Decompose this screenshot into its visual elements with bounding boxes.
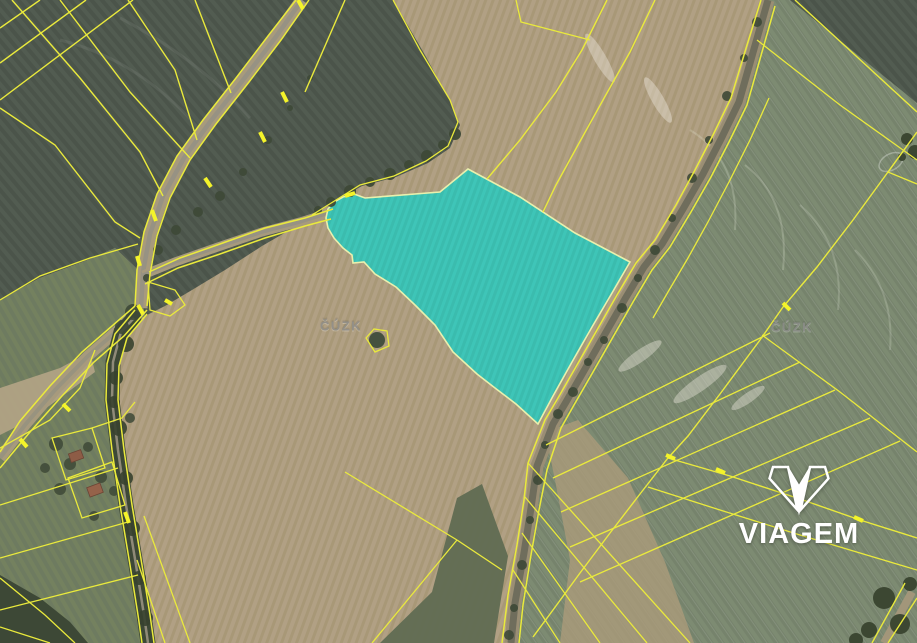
- viagem-logo-icon: [768, 464, 830, 517]
- gem-center: [788, 466, 810, 516]
- viagem-logo-text: VIAGEM: [739, 520, 859, 549]
- gem-left-wing: [770, 467, 798, 510]
- map-viewport: ČÚZK ČÚZK VIAGEM: [0, 0, 917, 643]
- viagem-logo: VIAGEM: [704, 464, 894, 549]
- cuzk-watermark-1: ČÚZK: [320, 319, 362, 334]
- cuzk-watermark-2: ČÚZK: [771, 320, 813, 335]
- gem-right-wing: [801, 467, 829, 510]
